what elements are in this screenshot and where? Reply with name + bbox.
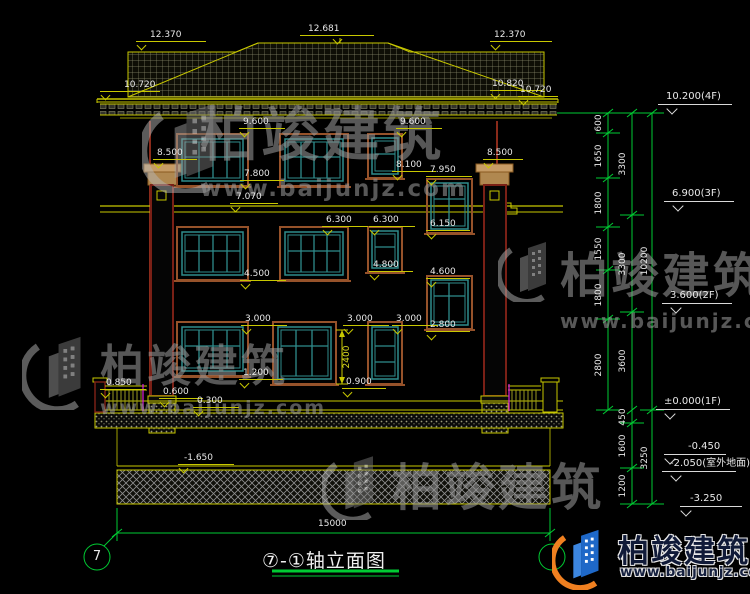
dimension-value: 450 (618, 408, 628, 425)
cad-elevation-drawing: 柏竣建筑 www.baijunjz.com 柏竣建筑 www.baijunjz.… (0, 0, 750, 594)
elevation-label: 8.500 (157, 148, 183, 158)
dimension-value: 10200 (640, 247, 650, 276)
floor-elevation-label: -3.250 (690, 494, 722, 504)
elevation-label: 3.000 (396, 314, 422, 324)
elevation-label: 3.000 (245, 314, 271, 324)
elevation-leader-line (100, 91, 160, 92)
elevation-label: 12.370 (494, 30, 526, 40)
floor-elevation-label: 10.200(4F) (666, 92, 721, 102)
elevation-label: 4.600 (430, 267, 456, 277)
watermark-logo (22, 332, 100, 410)
elevation-label: 0.900 (346, 377, 372, 387)
dimension-value: 1550 (594, 238, 604, 261)
elevation-label: 1.200 (243, 368, 269, 378)
elevation-label: 2.800 (430, 320, 456, 330)
dimension-value: 3300 (618, 253, 628, 276)
dimension-value: 1200 (618, 475, 628, 498)
floor-elevation-label: ±0.000(1F) (664, 397, 721, 407)
elevation-label: 6.150 (430, 219, 456, 229)
elevation-label: 8.500 (487, 148, 513, 158)
dimension-value: 3300 (618, 153, 628, 176)
elevation-label: 9.600 (400, 117, 426, 127)
dimension-value: 1600 (618, 435, 628, 458)
elevation-leader-line (178, 464, 234, 465)
elevation-label: 0.600 (163, 387, 189, 397)
dimension-value: 2400 (342, 346, 352, 369)
elevation-label: 7.070 (236, 192, 262, 202)
elevation-label: 6.300 (326, 215, 352, 225)
floor-elevation-label: 6.900(3F) (672, 189, 721, 199)
elevation-label: -1.650 (184, 453, 213, 463)
drawing-title: ⑦-①轴立面图 (262, 546, 462, 573)
elevation-label: 7 (93, 552, 101, 562)
dimension-value: 3250 (640, 447, 650, 470)
watermark-logo (498, 238, 562, 302)
elevation-label: 12.681 (308, 24, 340, 34)
elevation-label: 0.300 (197, 396, 223, 406)
elevation-label: 10.720 (124, 80, 156, 90)
elevation-label: 15000 (318, 519, 347, 529)
elevation-label: 8.100 (396, 160, 422, 170)
watermark-logo (322, 452, 390, 520)
watermark-name: 柏竣建筑 (200, 88, 467, 172)
elevation-leader-line (490, 41, 552, 42)
brand-block[interactable]: 柏竣建筑 www.baijunjz.com (552, 520, 750, 594)
elevation-label: 7.800 (244, 169, 270, 179)
floor-elevation-label: -2.050(室外地面) (670, 459, 750, 469)
elevation-label: 4.800 (373, 260, 399, 270)
elevation-leader-line (680, 506, 742, 507)
elevation-leader-line (136, 41, 206, 42)
brand-url: www.baijunjz.com (620, 564, 750, 580)
watermark-name: 柏竣建筑 (100, 330, 326, 394)
elevation-label: 6.300 (373, 215, 399, 225)
elevation-label: 9.600 (243, 117, 269, 127)
floor-elevation-label: -0.450 (688, 442, 720, 452)
dimension-value: 3600 (618, 350, 628, 373)
watermark-name: 柏竣建筑 (392, 448, 604, 520)
dimension-value: 600 (594, 114, 604, 131)
elevation-label: 0.850 (106, 378, 132, 388)
dimension-value: 2800 (594, 354, 604, 377)
watermark: 柏竣建筑 www.baijunjz.com (560, 236, 750, 333)
dimension-value: 1800 (594, 284, 604, 307)
brand-logo-icon (552, 524, 614, 590)
watermark-name: 柏竣建筑 (560, 236, 750, 306)
elevation-label: 3.000 (347, 314, 373, 324)
dimension-value: 1800 (594, 192, 604, 215)
floor-elevation-label: 3.600(2F) (670, 291, 719, 301)
elevation-label: 7.950 (430, 165, 456, 175)
watermark: 柏竣建筑 (392, 448, 604, 520)
elevation-label: 12.370 (150, 30, 182, 40)
dimension-value: 1650 (594, 145, 604, 168)
elevation-leader-line (664, 454, 726, 455)
elevation-label: 10.820 (492, 79, 524, 89)
elevation-label: 10.720 (520, 85, 552, 95)
watermark-url: www.baijunjz.com (560, 309, 750, 333)
elevation-label: 4.500 (244, 269, 270, 279)
